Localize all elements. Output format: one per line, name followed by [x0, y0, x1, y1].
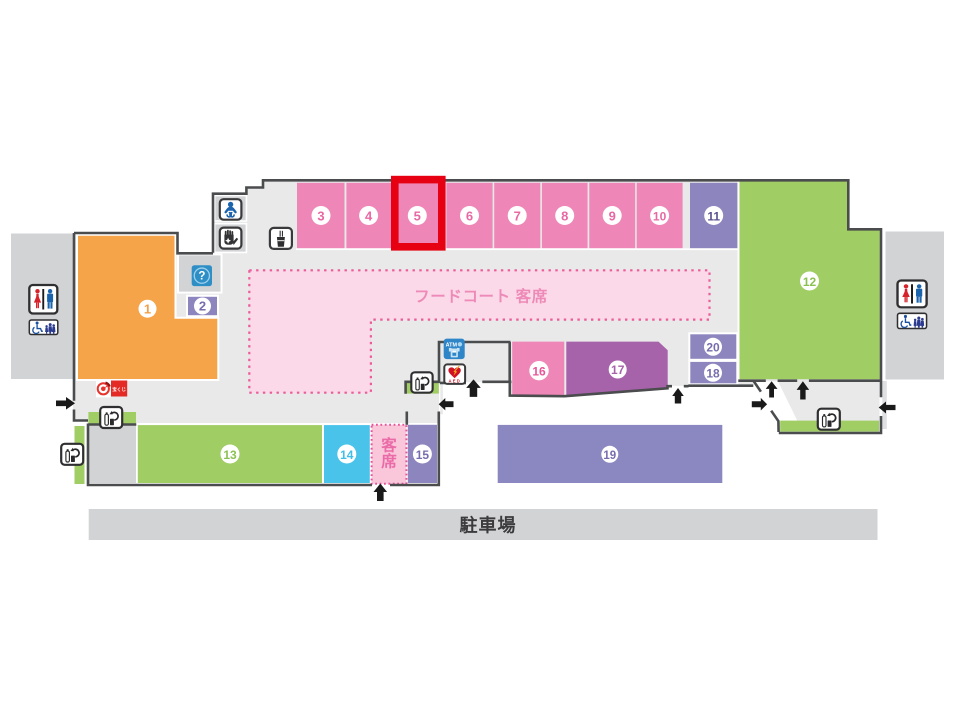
svg-text:10: 10: [653, 209, 667, 223]
svg-text:12: 12: [803, 275, 817, 289]
svg-text:宝くじ: 宝くじ: [112, 386, 126, 393]
svg-text:4: 4: [365, 208, 373, 223]
svg-text:9: 9: [609, 208, 616, 223]
svg-text:AED: AED: [448, 378, 460, 383]
svg-text:19: 19: [603, 450, 616, 462]
svg-text:7: 7: [514, 208, 521, 223]
svg-text:20: 20: [706, 341, 720, 355]
svg-text:客: 客: [381, 436, 397, 455]
svg-text:?: ?: [198, 271, 205, 283]
svg-text:2: 2: [199, 299, 206, 314]
svg-text:8: 8: [561, 208, 568, 223]
svg-text:15: 15: [416, 448, 430, 462]
svg-text:席: 席: [381, 452, 397, 471]
svg-text:11: 11: [707, 209, 720, 223]
svg-text:3: 3: [317, 208, 324, 223]
svg-text:駐車場: 駐車場: [460, 515, 517, 536]
svg-text:18: 18: [706, 367, 720, 381]
svg-text:1: 1: [144, 302, 151, 317]
svg-text:13: 13: [223, 448, 237, 462]
svg-text:5: 5: [414, 208, 421, 223]
svg-text:6: 6: [466, 208, 473, 223]
svg-text:ATM: ATM: [446, 342, 458, 348]
svg-text:16: 16: [532, 365, 546, 379]
svg-text:14: 14: [340, 448, 354, 462]
svg-text:17: 17: [611, 363, 625, 377]
svg-text:フードコート 客席: フードコート 客席: [414, 287, 548, 306]
